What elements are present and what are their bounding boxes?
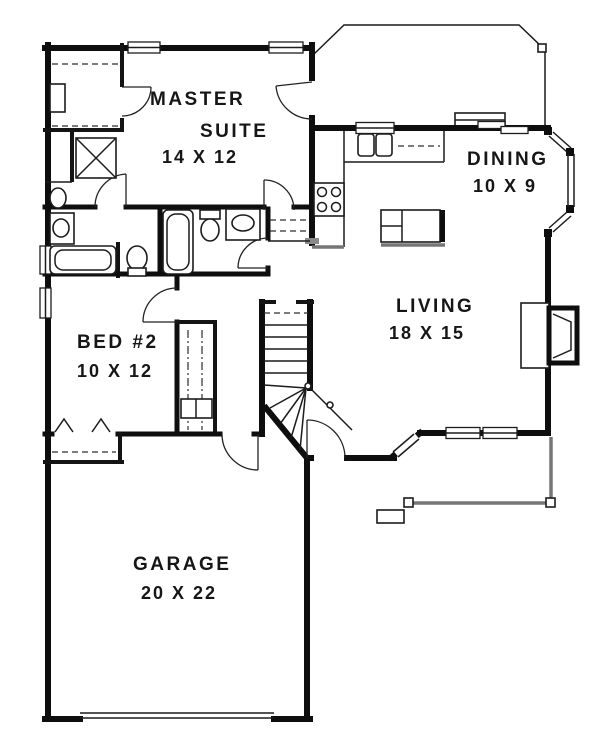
bed2-door (143, 288, 177, 322)
newel-post (305, 383, 311, 389)
bifold-door (92, 419, 110, 432)
toilet-icon (127, 246, 147, 276)
master-door (276, 82, 312, 119)
fireplace-icon (521, 303, 577, 368)
dining-room-name: DINING (467, 149, 549, 170)
bed2-room-name: BED #2 (77, 332, 159, 353)
newel-post (327, 402, 333, 408)
deck-outline (313, 25, 546, 127)
island-icon (381, 210, 445, 245)
slider-door (501, 127, 528, 134)
master-closet-door (122, 87, 151, 116)
bathtub-icon (163, 210, 193, 274)
garage-door (80, 713, 274, 718)
hall-bath-door (238, 238, 268, 268)
floor-plan: MASTER SUITE 14 X 12 DINING 10 X 9 LIVIN… (0, 0, 600, 744)
dining-room-dims: 10 X 9 (473, 176, 537, 196)
bifold-door (55, 419, 73, 432)
toilet-icon (200, 210, 220, 241)
vanity-sink-icon (50, 213, 74, 244)
windows (40, 42, 574, 457)
garage-room-name: GARAGE (133, 554, 231, 575)
garage-entry-door (222, 434, 258, 470)
living-room-dims: 18 X 15 (389, 323, 465, 343)
floor-plan-drawing: MASTER SUITE 14 X 12 DINING 10 X 9 LIVIN… (0, 0, 600, 744)
master-room-name: MASTER (150, 89, 245, 110)
porch-post (546, 498, 555, 507)
hall-closet-door (264, 180, 294, 210)
hall-bath-fixtures (163, 209, 260, 274)
closet-shelf (50, 84, 65, 112)
master-bath-door (95, 174, 126, 207)
vanity-sink-icon (226, 209, 260, 240)
range-cooktop-icon (314, 183, 344, 216)
porch-step (377, 510, 404, 523)
kitchen-sink-icon (358, 134, 392, 156)
master-room-name2: SUITE (200, 121, 268, 142)
front-door (307, 420, 345, 458)
bathtub-icon (50, 246, 116, 274)
bed2-room-dims: 10 X 12 (77, 361, 153, 381)
living-room-name: LIVING (396, 296, 474, 317)
toilet-icon (50, 188, 66, 208)
garage-room-dims: 20 X 22 (141, 583, 217, 603)
master-room-dims: 14 X 12 (162, 147, 238, 167)
kitchen-fixtures (312, 131, 445, 247)
porch-post (404, 498, 413, 507)
shower-icon (76, 138, 116, 178)
